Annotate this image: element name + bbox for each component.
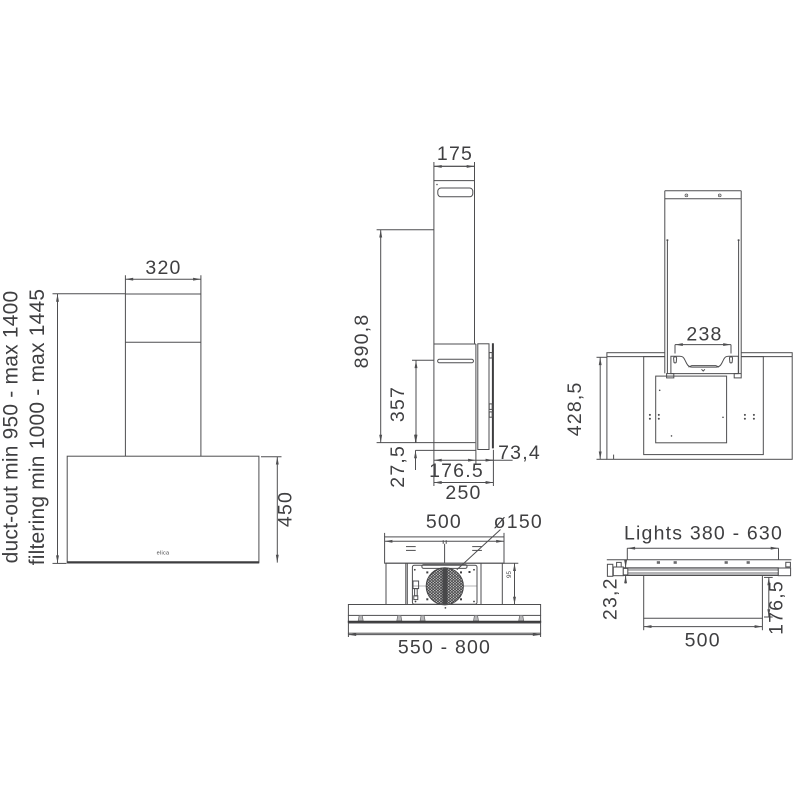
- svg-text:23,2: 23,2: [599, 577, 621, 620]
- svg-text:238: 238: [686, 324, 722, 346]
- svg-text:550 - 800: 550 - 800: [398, 637, 491, 659]
- svg-text:duct-out min 950 - max 1400: duct-out min 950 - max 1400: [0, 291, 23, 564]
- svg-text:27,5: 27,5: [387, 445, 409, 488]
- svg-text:450: 450: [275, 491, 297, 527]
- svg-text:176,5: 176,5: [766, 580, 788, 635]
- svg-text:428,5: 428,5: [564, 381, 586, 436]
- svg-text:320: 320: [145, 257, 181, 279]
- svg-text:73,4: 73,4: [498, 442, 541, 464]
- svg-text:Lights 380 - 630: Lights 380 - 630: [624, 523, 783, 545]
- svg-text:filtering min 1000 - max 1445: filtering min 1000 - max 1445: [26, 289, 49, 566]
- svg-text:elica: elica: [157, 551, 170, 557]
- svg-text:176.5: 176.5: [429, 460, 484, 482]
- svg-text:357: 357: [387, 386, 409, 422]
- svg-text:890,8: 890,8: [351, 314, 373, 369]
- svg-text:250: 250: [445, 482, 481, 504]
- svg-text:500: 500: [685, 630, 721, 652]
- svg-text:500: 500: [426, 511, 462, 533]
- svg-text:ø150: ø150: [494, 511, 543, 533]
- svg-text:175: 175: [437, 143, 473, 165]
- svg-text:95: 95: [506, 571, 513, 578]
